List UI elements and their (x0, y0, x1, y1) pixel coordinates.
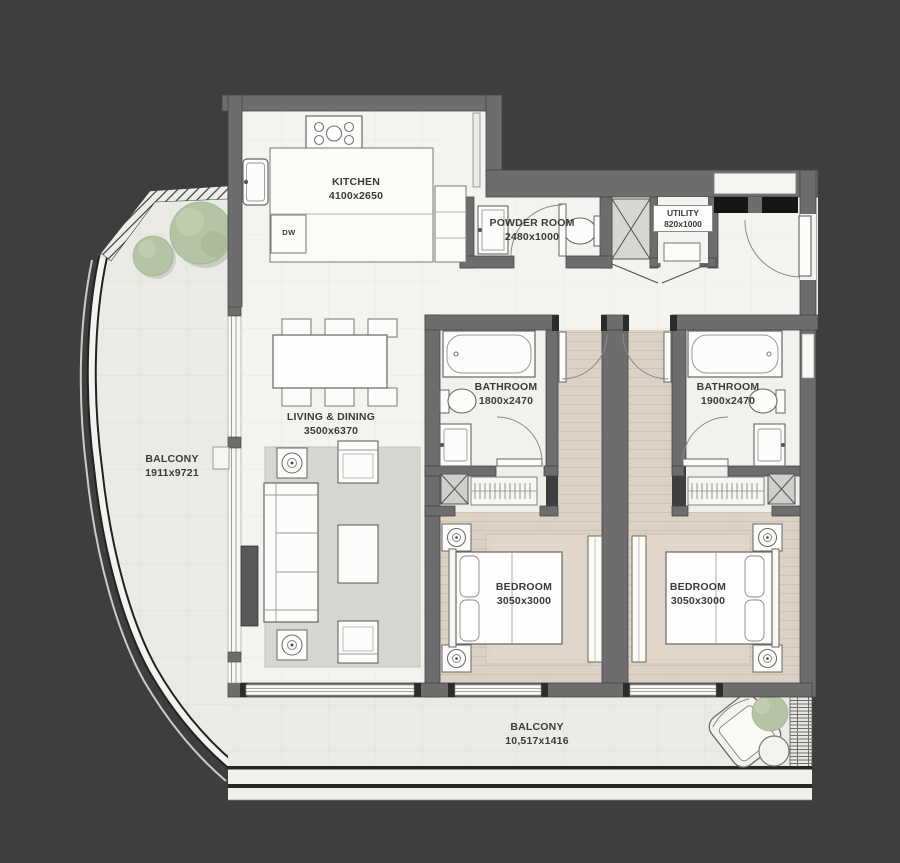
room-name: KITCHEN (286, 176, 426, 190)
wall-closet1-top-b (544, 466, 558, 476)
floor-plan: KITCHEN 4100x2650 POWDER ROOM 2480x1000 … (0, 0, 900, 863)
lamp-icon (448, 529, 466, 547)
utility-washer (664, 243, 700, 261)
lamp-icon (759, 650, 777, 668)
headboard (772, 549, 779, 647)
room-dims: 820x1000 (655, 219, 711, 230)
room-name: BALCONY (467, 721, 607, 735)
wall-left-upper (228, 95, 242, 307)
balcony-grid-screen (790, 691, 812, 767)
wall-powder-bottom-a (460, 256, 514, 268)
glazing-pier-3 (228, 652, 241, 662)
bathtub-2 (688, 331, 782, 377)
headboard (449, 549, 456, 647)
label-bedroom-2: BEDROOM 3050x3000 (636, 581, 760, 608)
railing-line-top (228, 766, 812, 770)
plant-balcony-icon (752, 695, 788, 731)
room-dims: 3050x3000 (636, 595, 760, 609)
room-dims: 3050x3000 (462, 595, 586, 609)
label-bedroom-1: BEDROOM 3050x3000 (462, 581, 586, 608)
vanity-1-faucet (440, 443, 444, 447)
dining-chair (325, 388, 354, 406)
bathroom-1-door (497, 459, 542, 466)
balcony-bottom-railing-band (228, 766, 812, 800)
window-bathroom-2 (802, 334, 814, 378)
round-side-table (759, 736, 789, 766)
wall-closet2-top-a (672, 466, 684, 476)
label-powder-room: POWDER ROOM 2480x1000 (474, 217, 590, 244)
bedroom-1-door (559, 332, 566, 382)
window-bedroom-2 (630, 685, 716, 695)
wall-closet2-stub-b (772, 506, 800, 516)
dining-set (273, 319, 397, 406)
wall-bath1-top (425, 315, 558, 330)
media-console (241, 546, 258, 626)
vanity-1 (440, 424, 471, 466)
room-name: BALCONY (112, 453, 232, 467)
kitchen-counter-right (435, 186, 466, 262)
kitchen-faucet (244, 180, 248, 184)
label-dishwasher: DW (272, 228, 306, 238)
bedroom-2-door (664, 332, 671, 382)
floor-plan-drawing (0, 0, 900, 863)
dining-chair (368, 388, 397, 406)
vanity-2 (754, 424, 785, 466)
room-dims: 1800x2470 (446, 395, 566, 409)
tall-cabinet (473, 113, 480, 187)
lamp-icon (448, 650, 466, 668)
room-dims: 4100x2650 (286, 190, 426, 204)
dining-chair (282, 388, 311, 406)
dining-chair (368, 319, 397, 337)
wall-closet1-stub-a (425, 506, 455, 516)
room-dims: 10,517x1416 (467, 735, 607, 749)
room-dims: 3500x6370 (261, 425, 401, 439)
armchair-top (338, 441, 378, 483)
wall-powder-bottom-b (566, 256, 612, 268)
wall-top (222, 95, 502, 111)
window-bedroom-1 (455, 685, 541, 695)
label-living-dining: LIVING & DINING 3500x6370 (261, 411, 401, 438)
wall-closet2-stub-a (672, 506, 688, 516)
wall-bath2-top (672, 315, 818, 330)
dining-chair (282, 319, 311, 337)
room-dims: 1900x2470 (668, 395, 788, 409)
bathtub-1 (443, 331, 535, 377)
wall-step (486, 95, 502, 177)
room-name: BATHROOM (668, 381, 788, 395)
shaft-top (612, 199, 650, 259)
label-bathroom-1: BATHROOM 1800x2470 (446, 381, 566, 408)
room-name: UTILITY (655, 208, 711, 219)
label-utility: UTILITY 820x1000 (653, 205, 713, 232)
entrance-mat-block (748, 197, 762, 213)
railing-edge (228, 799, 812, 800)
dining-chair (325, 319, 354, 337)
armchair-bottom (338, 621, 378, 663)
appliance-name: DW (272, 228, 306, 238)
lamp-icon (759, 529, 777, 547)
closet-2 (688, 474, 795, 505)
room-name: BEDROOM (636, 581, 760, 595)
room-dims: 2480x1000 (474, 231, 590, 245)
closet-1 (441, 474, 537, 505)
window-living (246, 685, 414, 695)
room-name: LIVING & DINING (261, 411, 401, 425)
vanity-2-faucet (781, 443, 785, 447)
room-dims: 1911x9721 (112, 467, 232, 481)
wall-closet1-stub-b (540, 506, 558, 516)
bathroom-2-door (683, 459, 728, 466)
window-balcony-wall (228, 307, 241, 683)
entrance-door (799, 216, 811, 276)
label-balcony-bottom: BALCONY 10,517x1416 (467, 721, 607, 748)
label-kitchen: KITCHEN 4100x2650 (286, 176, 426, 203)
wall-center (602, 330, 628, 684)
label-bathroom-2: BATHROOM 1900x2470 (668, 381, 788, 408)
label-balcony-side: BALCONY 1911x9721 (112, 453, 232, 480)
dining-table (273, 335, 387, 388)
room-name: POWDER ROOM (474, 217, 590, 231)
powder-toilet-tank (594, 216, 600, 246)
coffee-table (338, 525, 378, 583)
sofa (264, 483, 318, 622)
glazing-pier-2 (228, 437, 241, 448)
room-name: BEDROOM (462, 581, 586, 595)
lamp-icon (282, 635, 302, 655)
room-name: BATHROOM (446, 381, 566, 395)
railing-line-bottom (228, 784, 812, 788)
entrance-shelf (714, 173, 796, 194)
glazing-pier-1 (228, 307, 241, 316)
lamp-icon (282, 453, 302, 473)
